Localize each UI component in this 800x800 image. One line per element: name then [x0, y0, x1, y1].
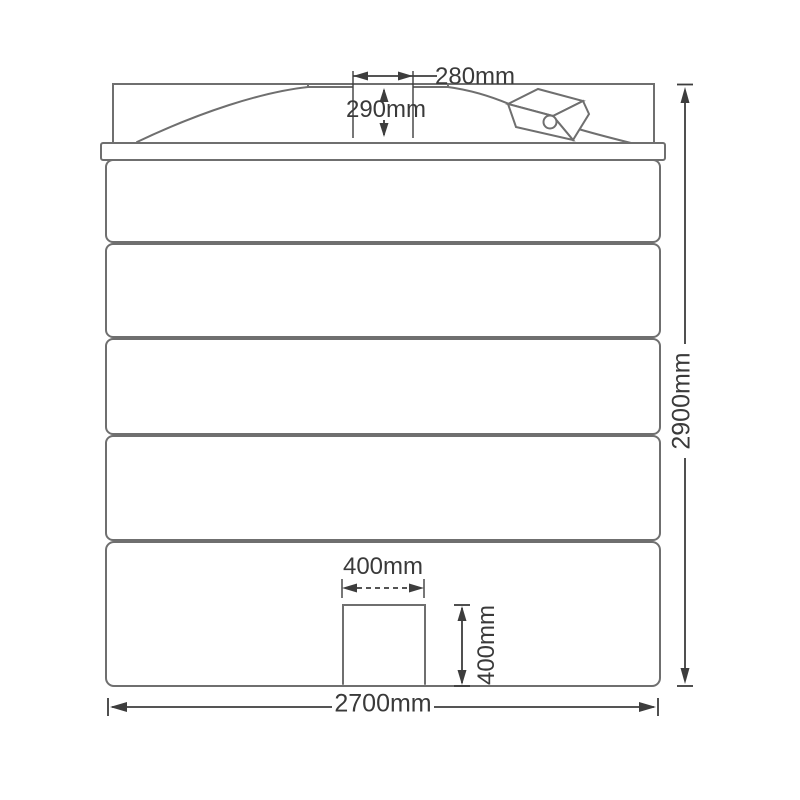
tank-body-bands — [106, 160, 660, 686]
dim-label-sump-height: 400mm — [475, 605, 499, 685]
dim-label-lid-width: 280mm — [435, 65, 515, 89]
tank-band-2 — [106, 244, 660, 337]
arrow-left-icon — [110, 702, 127, 712]
dim-label-overall-width: 2700mm — [334, 692, 431, 717]
arrow-up-icon — [681, 87, 690, 103]
tank-dome-curve-left — [137, 87, 308, 142]
tank-dome-curve-right — [575, 128, 631, 143]
outlet-port-circle — [544, 116, 557, 129]
arrow-right-icon — [398, 72, 413, 81]
outlet-box-fitting — [508, 89, 589, 140]
arrow-left-icon — [353, 72, 368, 81]
arrow-down-icon — [380, 123, 389, 137]
arrow-down-icon — [681, 668, 690, 684]
tank-band-4 — [106, 436, 660, 540]
tank-band-1 — [106, 160, 660, 242]
diagram-canvas: 280mm 290mm 2900mm 400mm 400mm 2700mm — [0, 0, 800, 800]
tank-outline — [101, 84, 665, 686]
dim-label-sump-width: 400mm — [343, 555, 423, 579]
tank-band-3 — [106, 339, 660, 434]
dim-label-neck-height: 290mm — [346, 98, 426, 122]
arrow-right-icon — [639, 702, 656, 712]
dim-label-overall-height: 2900mm — [670, 352, 695, 449]
tank-flange — [101, 143, 665, 160]
